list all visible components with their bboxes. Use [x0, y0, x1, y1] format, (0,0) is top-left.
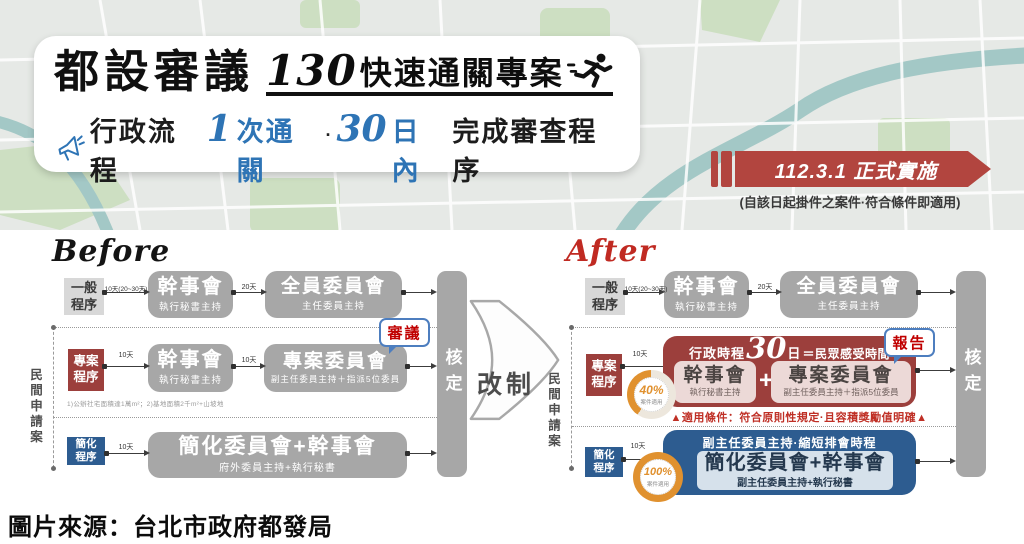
duration-label: 10天(20~30天) — [608, 283, 684, 293]
arrowhead — [950, 458, 956, 464]
flow-arrow — [918, 292, 954, 293]
image-source-caption: 圖片來源：台北市政府都發局 — [8, 507, 333, 542]
duration-label: 10天(20~30天) — [88, 283, 164, 293]
junction-dot — [405, 364, 410, 369]
duration-label: 10天 — [618, 349, 662, 359]
box-subtitle: 執行秘書主持 — [689, 386, 740, 398]
junction-dot — [401, 290, 406, 295]
flow-arrow — [749, 292, 780, 293]
flow-arrow — [106, 453, 148, 454]
branch-dotted-line — [54, 417, 437, 418]
junction-dot — [621, 457, 626, 462]
flow-arrow — [233, 366, 264, 367]
applicant-dashed-line — [571, 327, 572, 468]
timeline-number: 30 — [746, 337, 786, 360]
report-speech-bubble: 報告 — [884, 328, 935, 357]
simplified-committee-box: 簡化委員會+幹事會 副主任委員主持+執行秘書 — [697, 451, 893, 490]
after-diagram: After 民間申請案 一般 程序 10天(20~30天) 幹事會 執行秘書主持… — [0, 0, 1024, 544]
timeline-day: 日 — [787, 343, 801, 362]
box-subtitle: 執行秘書主持 — [675, 299, 738, 313]
box-title: 簡化委員會+幹事會 — [705, 453, 886, 473]
branch-dotted-line — [572, 426, 956, 427]
timeline-suffix: ＝民眾感受時間 — [802, 345, 890, 362]
line-endpoint-dot — [569, 466, 574, 471]
box-title: 幹事會 — [683, 366, 746, 385]
approval-label: 核定 — [959, 348, 984, 400]
approval-bar: 核定 — [956, 271, 986, 477]
junction-dot — [405, 451, 410, 456]
project-committee-box: 專案委員會 副主任委員主持＋指派5位委員 — [771, 361, 911, 403]
duration-label: 10天 — [104, 442, 148, 452]
duration-label: 10天 — [229, 355, 269, 365]
project-container-header: 行政時程 30 日 ＝民眾感受時間 — [663, 337, 916, 362]
arrowhead — [431, 450, 437, 456]
line-endpoint-dot — [569, 325, 574, 330]
project-procedure-label: 專案 程序 — [586, 354, 622, 396]
arrowhead — [144, 363, 150, 369]
applicability-condition: ▲適用條件：符合原則性規定·且容積獎勵值明確▲ — [660, 409, 938, 425]
donut-caption: 案件適用 — [647, 480, 669, 488]
project-container: 行政時程 30 日 ＝民眾感受時間 幹事會 執行秘書主持 + 專案委員會 副主任… — [663, 336, 916, 407]
duration-label: 10天 — [616, 441, 660, 451]
junction-dot — [620, 364, 625, 369]
flow-arrow — [917, 370, 954, 371]
secretariat-meeting-box: 幹事會 執行秘書主持 — [664, 271, 749, 318]
flow-arrow — [622, 366, 666, 367]
secretariat-meeting-box: 幹事會 執行秘書主持 — [674, 361, 756, 403]
after-title: After — [566, 234, 655, 269]
box-title: 專案委員會 — [788, 366, 893, 385]
infographic-canvas: 都設審議 130 快速通關專案 — [0, 0, 1024, 544]
junction-dot — [102, 364, 107, 369]
donut-percent: 100% — [644, 467, 672, 478]
junction-dot — [916, 290, 921, 295]
arrowhead — [431, 363, 437, 369]
full-committee-box: 全員委員會 主任委員主持 — [780, 271, 918, 318]
arrowhead — [950, 367, 956, 373]
timeline-prefix: 行政時程 — [689, 343, 745, 362]
box-subtitle: 副主任委員主持＋指派5位委員 — [783, 386, 898, 398]
bubble-text: 報告 — [892, 332, 926, 353]
duration-label: 20天 — [745, 282, 785, 292]
flow-arrow — [104, 366, 148, 367]
bubble-tail — [894, 355, 903, 364]
flow-arrow — [917, 461, 954, 462]
junction-dot — [915, 459, 920, 464]
box-title: 全員委員會 — [796, 277, 901, 296]
junction-dot — [915, 368, 920, 373]
flow-arrow — [407, 366, 435, 367]
transition-arrow-icon — [464, 296, 566, 424]
simplified-procedure-label: 簡化 程序 — [585, 447, 623, 477]
simplified-container: 副主任委員主持·縮短排會時程 簡化委員會+幹事會 副主任委員主持+執行秘書 — [663, 430, 916, 495]
flow-arrow — [233, 292, 265, 293]
duration-label: 10天 — [104, 350, 148, 360]
bubble-text: 審議 — [387, 322, 421, 343]
flow-arrow — [403, 292, 435, 293]
box-subtitle: 主任委員主持 — [817, 298, 880, 312]
box-subtitle: 副主任委員主持+執行秘書 — [737, 474, 853, 489]
donut-caption: 案件適用 — [640, 398, 662, 406]
simplified-container-header: 副主任委員主持·縮短排會時程 — [663, 434, 916, 451]
review-speech-bubble: 審議 — [379, 318, 430, 347]
flow-arrow — [407, 453, 435, 454]
donut-chart-40pct: 40% 案件適用 — [627, 370, 676, 419]
arrowhead — [950, 289, 956, 295]
arrowhead — [431, 289, 437, 295]
bubble-tail — [389, 345, 398, 354]
duration-label: 20天 — [229, 282, 269, 292]
transition-label: 改制 — [477, 365, 535, 401]
line-endpoint-dot — [51, 466, 56, 471]
line-endpoint-dot — [51, 325, 56, 330]
donut-chart-100pct: 100% 案件適用 — [633, 452, 683, 502]
applicant-dashed-line — [53, 327, 54, 468]
donut-percent: 40% — [639, 384, 663, 396]
